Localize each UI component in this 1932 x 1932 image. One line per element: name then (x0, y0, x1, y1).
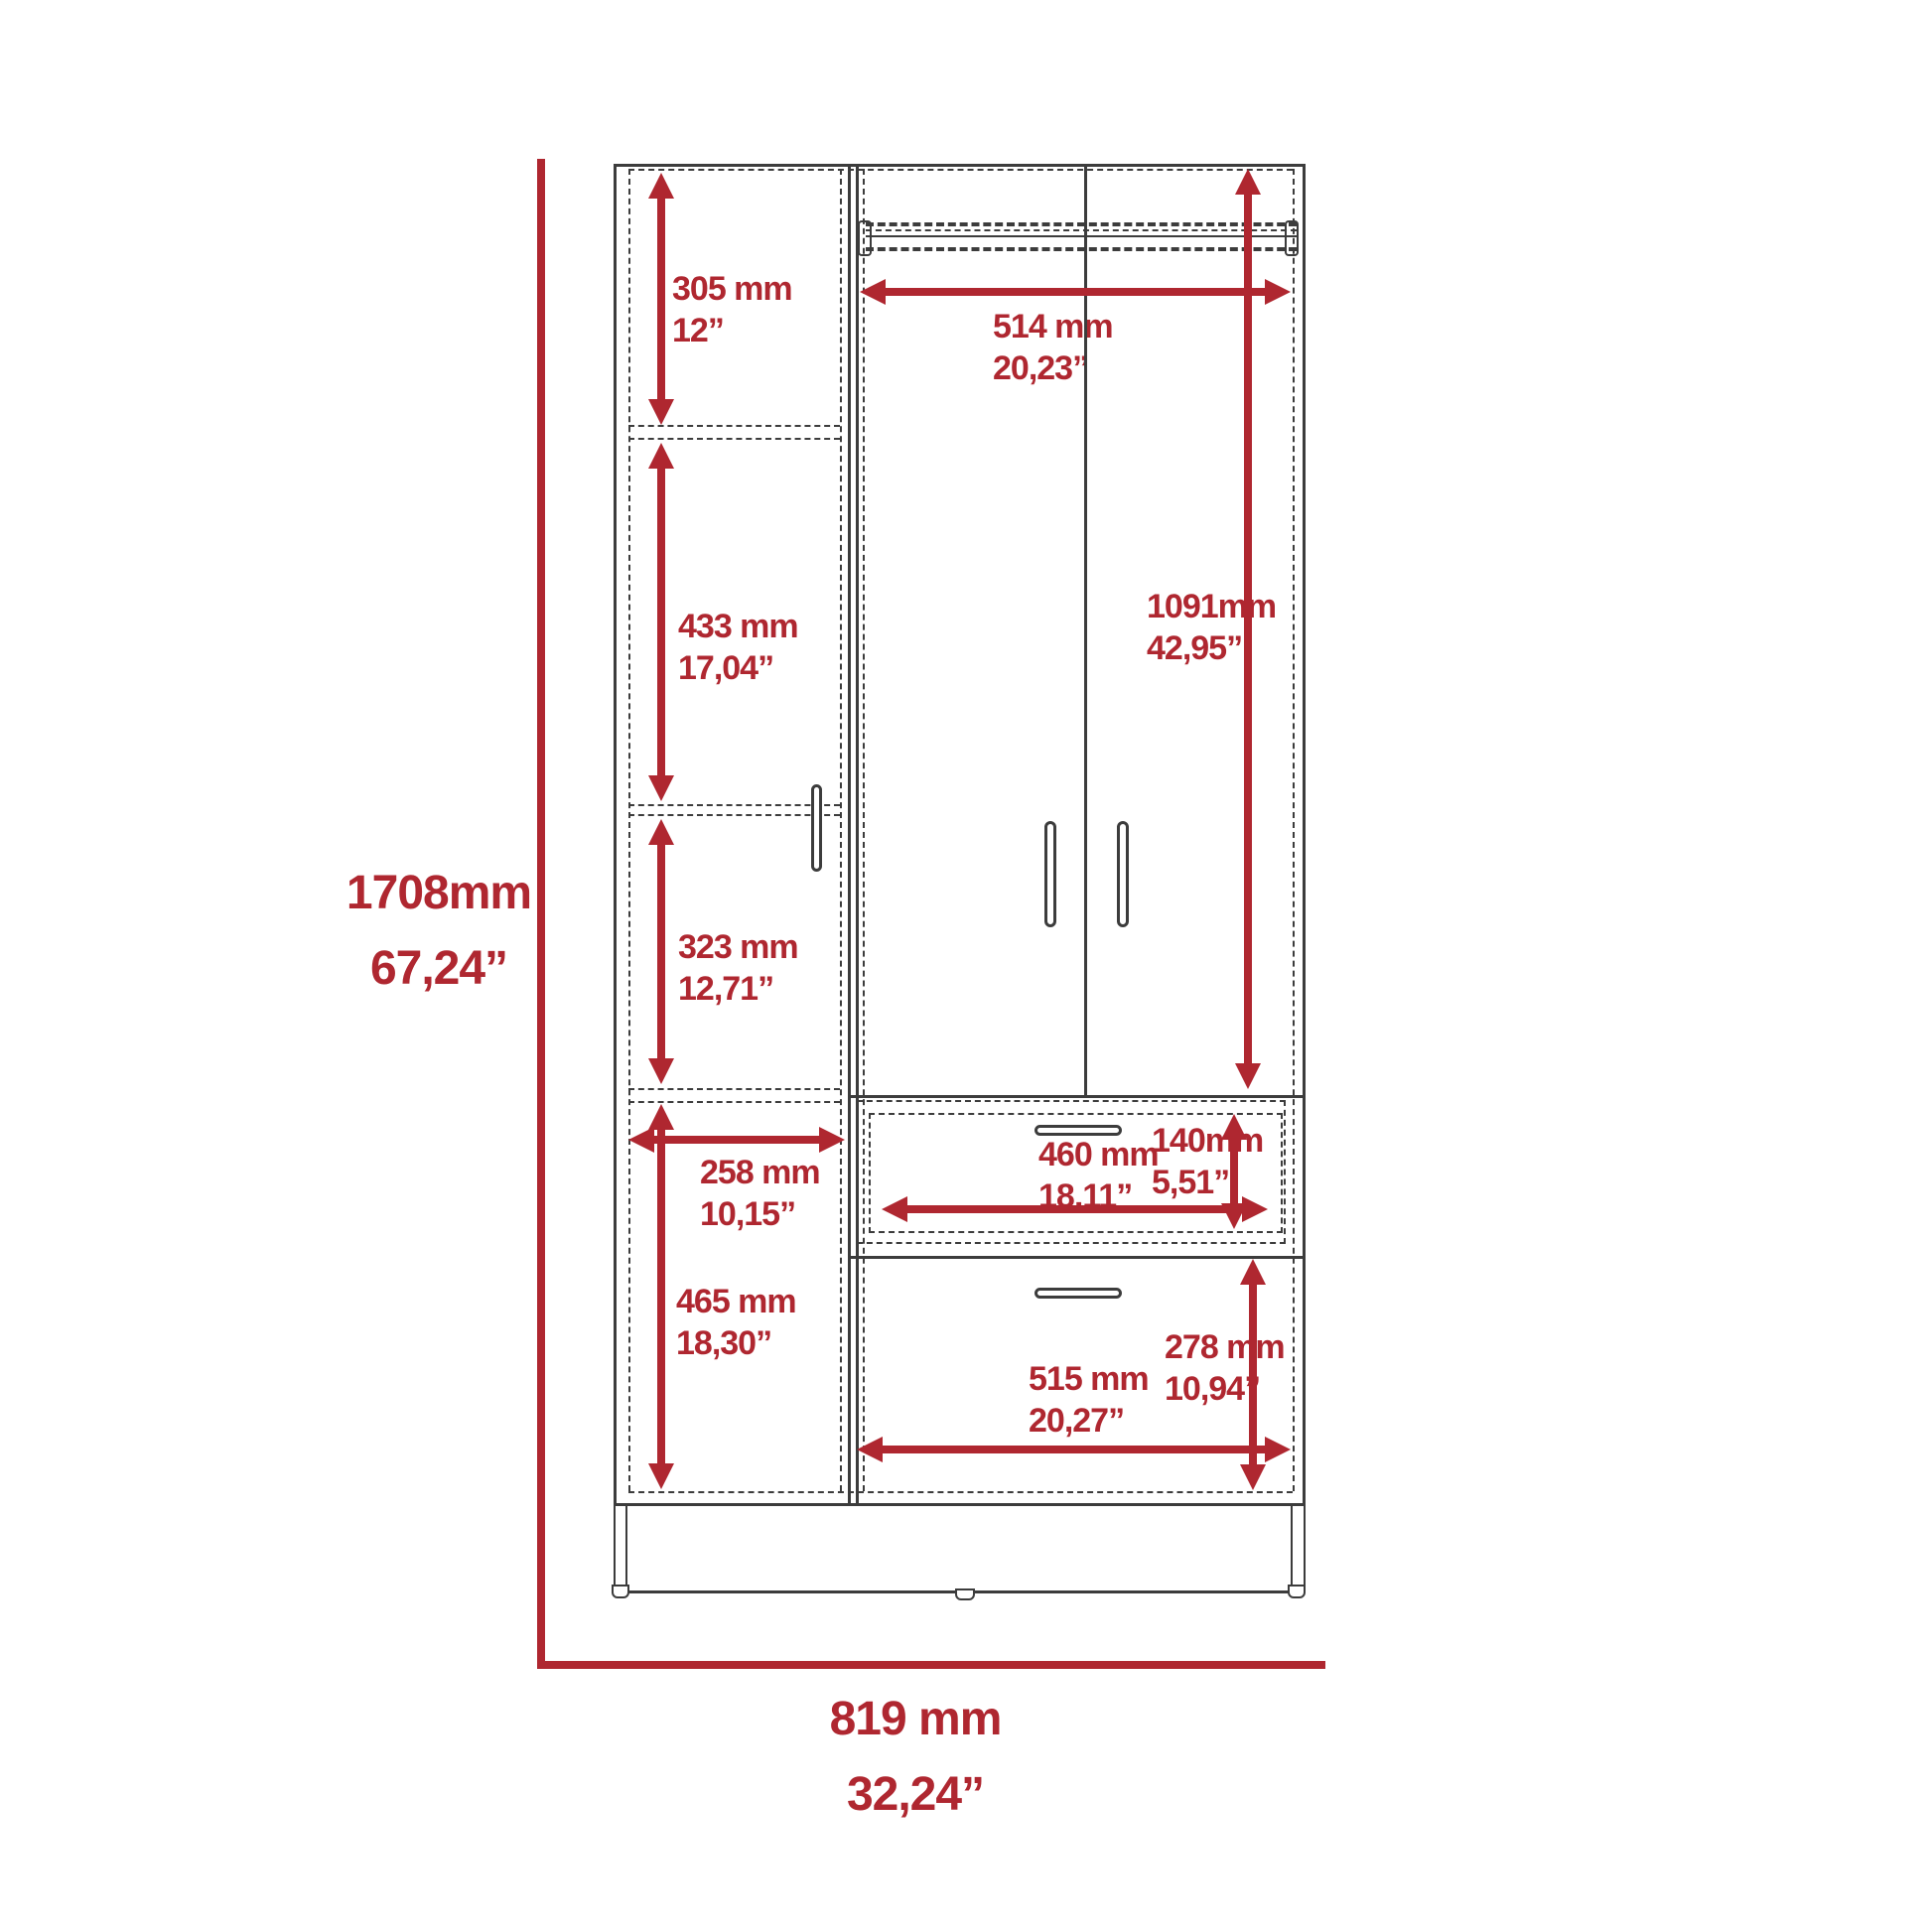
overall-width-in: 32,24” (806, 1757, 1025, 1833)
arrow-1091mm-head-down (1235, 1063, 1261, 1089)
rod-bracket-left (858, 220, 872, 256)
bottom-drawer-handle (1035, 1288, 1122, 1299)
overall-width-dimension-line (537, 1661, 1325, 1669)
arrow-305mm (657, 195, 665, 403)
left-leg-line (614, 1506, 616, 1588)
wardrobe-dimension-diagram: 1708mm 67,24” 819 mm 32,24” 305 mm12” 43… (0, 0, 1932, 1932)
arrow-258mm-head-right (819, 1127, 845, 1153)
rod-bracket-right (1285, 220, 1299, 256)
arrow-433mm-head-down (648, 775, 674, 801)
arrow-305mm-head-down (648, 399, 674, 425)
arrow-258mm-head-left (628, 1127, 654, 1153)
overall-height-in: 67,24” (330, 931, 548, 1007)
right-foot (1288, 1585, 1306, 1598)
arrow-323mm-head-up (648, 819, 674, 845)
arrow-1091mm (1244, 191, 1252, 1067)
arrow-140mm (1230, 1136, 1238, 1207)
arrow-460mm-head-left (882, 1196, 907, 1222)
arrow-278mm (1249, 1281, 1257, 1468)
arrow-433mm-head-up (648, 443, 674, 469)
arrow-465mm (657, 1126, 665, 1467)
middle-foot (955, 1588, 975, 1600)
arrow-140mm-head-up (1221, 1114, 1247, 1140)
overall-width-mm: 819 mm (806, 1682, 1025, 1757)
arrow-515mm (879, 1446, 1269, 1453)
overall-height-mm: 1708mm (330, 856, 548, 931)
arrow-460mm (903, 1205, 1246, 1213)
overall-width-label: 819 mm 32,24” (806, 1682, 1025, 1833)
arrow-258mm (650, 1136, 823, 1144)
arrow-305mm-head-up (648, 173, 674, 199)
arrow-278mm-head-up (1240, 1259, 1266, 1285)
arrow-514mm (882, 288, 1269, 296)
arrow-278mm-head-down (1240, 1464, 1266, 1490)
arrow-515mm-head-left (857, 1437, 883, 1462)
center-left-door-handle (1044, 821, 1056, 927)
arrow-514mm-head-right (1265, 279, 1291, 305)
arrow-514mm-head-left (860, 279, 886, 305)
arrow-433mm (657, 465, 665, 779)
left-door-handle (811, 784, 822, 872)
right-leg-line (1304, 1506, 1306, 1588)
arrow-465mm-head-down (648, 1463, 674, 1489)
left-foot (612, 1585, 629, 1598)
arrow-460mm-head-right (1242, 1196, 1268, 1222)
arrow-323mm (657, 841, 665, 1062)
right-leg-line (1291, 1506, 1293, 1588)
overall-height-label: 1708mm 67,24” (330, 856, 548, 1007)
arrow-323mm-head-down (648, 1058, 674, 1084)
arrow-515mm-head-right (1265, 1437, 1291, 1462)
top-drawer-handle (1035, 1125, 1122, 1136)
cabinet-outline (614, 164, 1306, 1506)
center-right-door-handle (1117, 821, 1129, 927)
left-leg-line (625, 1506, 627, 1588)
arrow-1091mm-head-up (1235, 169, 1261, 195)
